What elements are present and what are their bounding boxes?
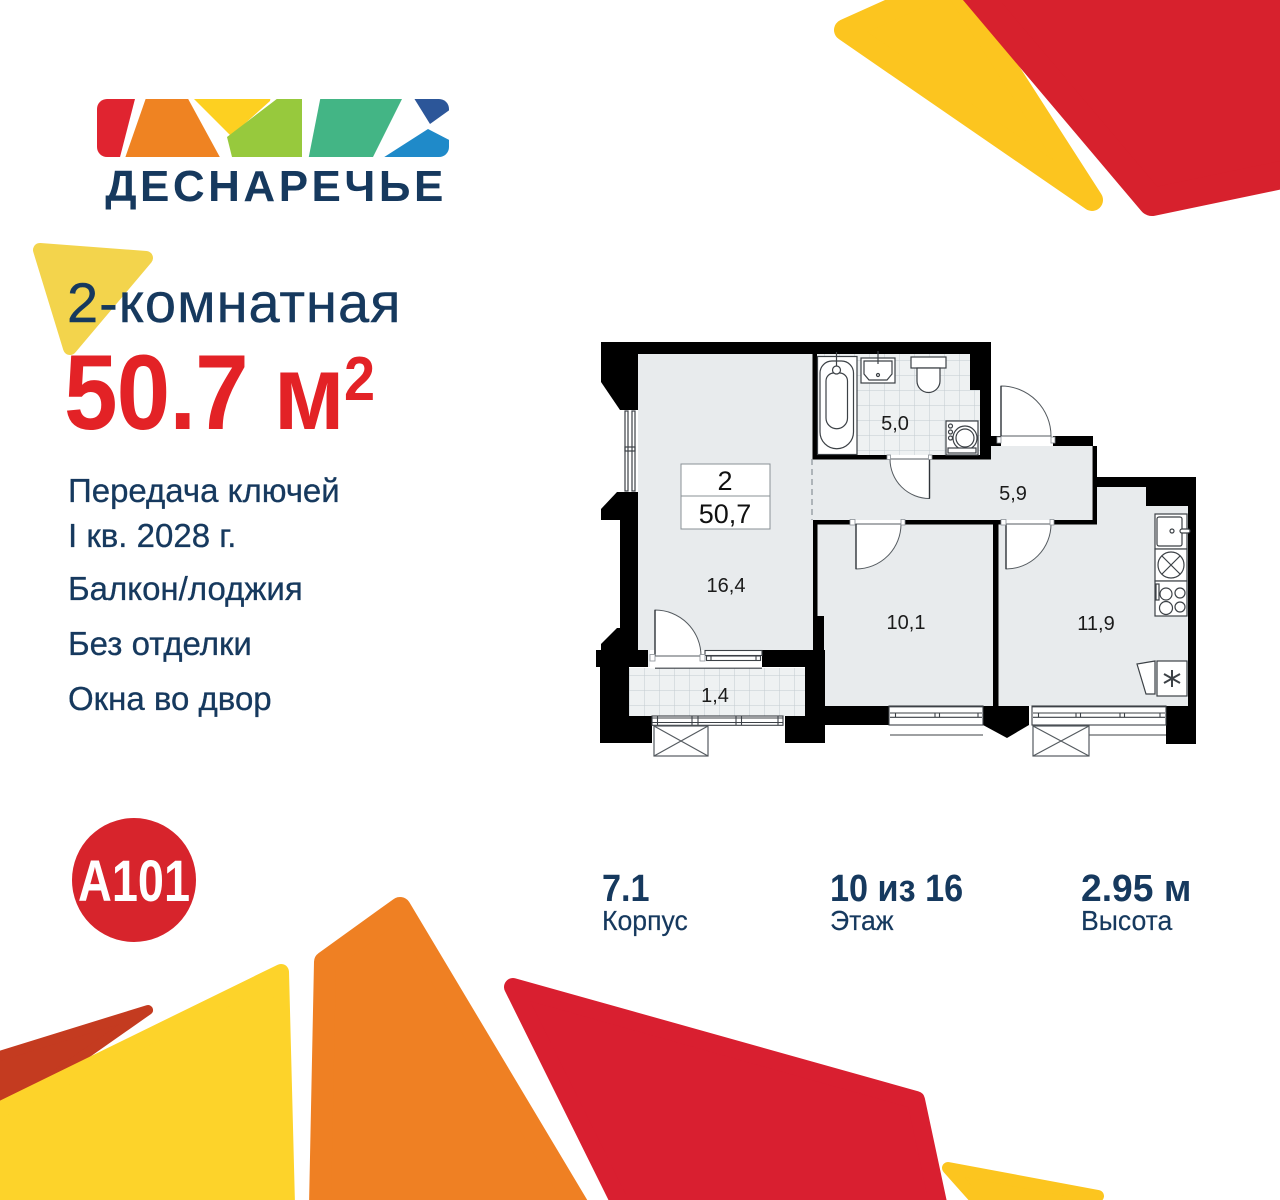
svg-text:10,1: 10,1: [887, 612, 926, 634]
svg-text:5,9: 5,9: [999, 483, 1027, 505]
svg-text:2: 2: [717, 466, 732, 496]
svg-text:11,9: 11,9: [1077, 613, 1114, 635]
svg-text:16,4: 16,4: [707, 575, 746, 597]
svg-text:50,7: 50,7: [699, 499, 752, 529]
svg-text:A101: A101: [78, 849, 190, 914]
svg-text:5,0: 5,0: [881, 413, 909, 435]
svg-text:1,4: 1,4: [701, 685, 729, 707]
